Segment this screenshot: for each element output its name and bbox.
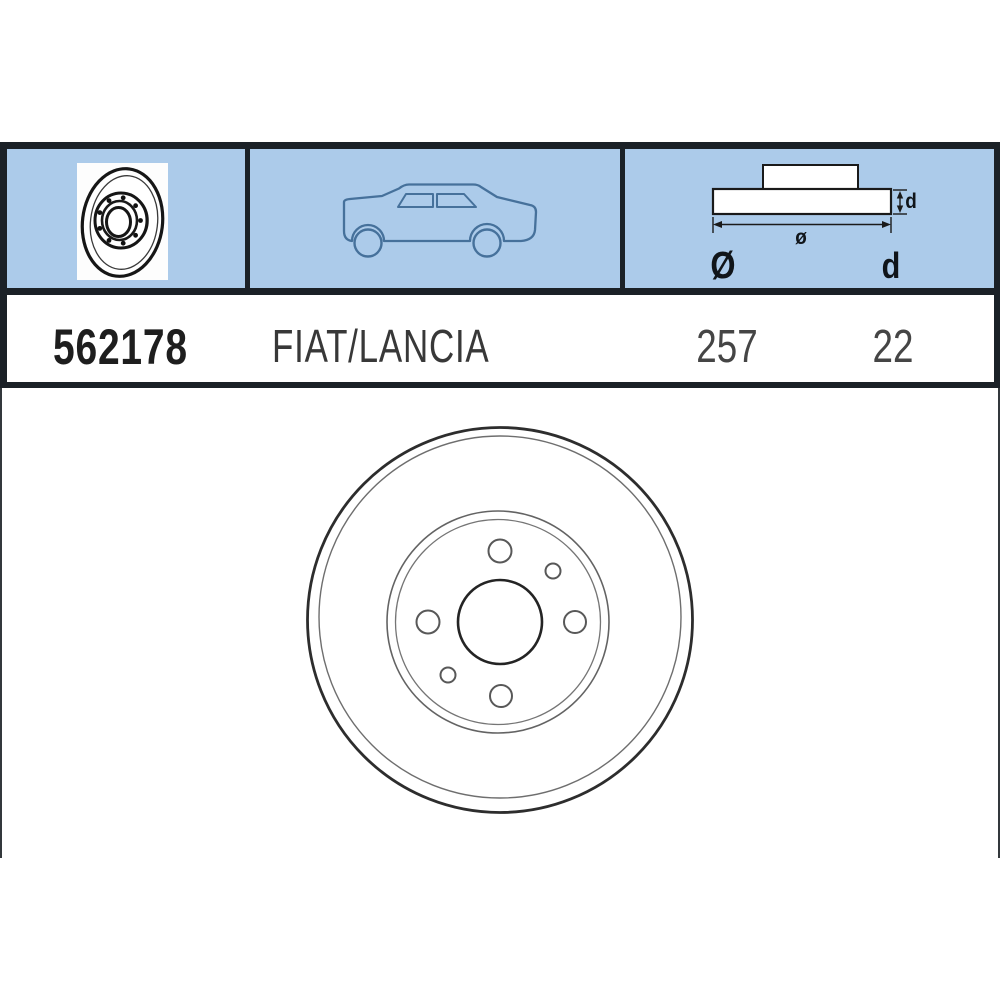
disc-cross-section-diagram [700, 160, 927, 240]
part-number: 562178 [53, 322, 188, 372]
dim-label-diameter-small: ø [792, 227, 810, 248]
column-divider [620, 149, 625, 288]
column-header-thickness: d [878, 248, 904, 284]
header-row: ø d Ø d [0, 142, 1000, 295]
column-header-diameter: Ø [710, 247, 736, 285]
brake-disc-perspective-icon [77, 163, 168, 280]
part-data-row: 562178 FIAT/LANCIA 257 22 [0, 295, 1000, 388]
drawing-area [0, 388, 1000, 858]
catalog-page: ø d Ø d 562178 FIAT/LANCIA 257 22 [0, 0, 1000, 1000]
value-outer-diameter: 257 [687, 323, 767, 369]
column-divider [245, 149, 250, 288]
vehicle-application: FIAT/LANCIA [272, 323, 490, 369]
value-thickness: 22 [853, 323, 933, 369]
thumbnail-box [77, 163, 168, 280]
dim-label-thickness-small: d [902, 191, 920, 212]
car-side-silhouette-icon [328, 181, 540, 259]
dimension-diagram-cell [700, 160, 927, 240]
brake-disc-front-view-drawing [303, 423, 697, 817]
vehicle-cell [328, 181, 540, 259]
